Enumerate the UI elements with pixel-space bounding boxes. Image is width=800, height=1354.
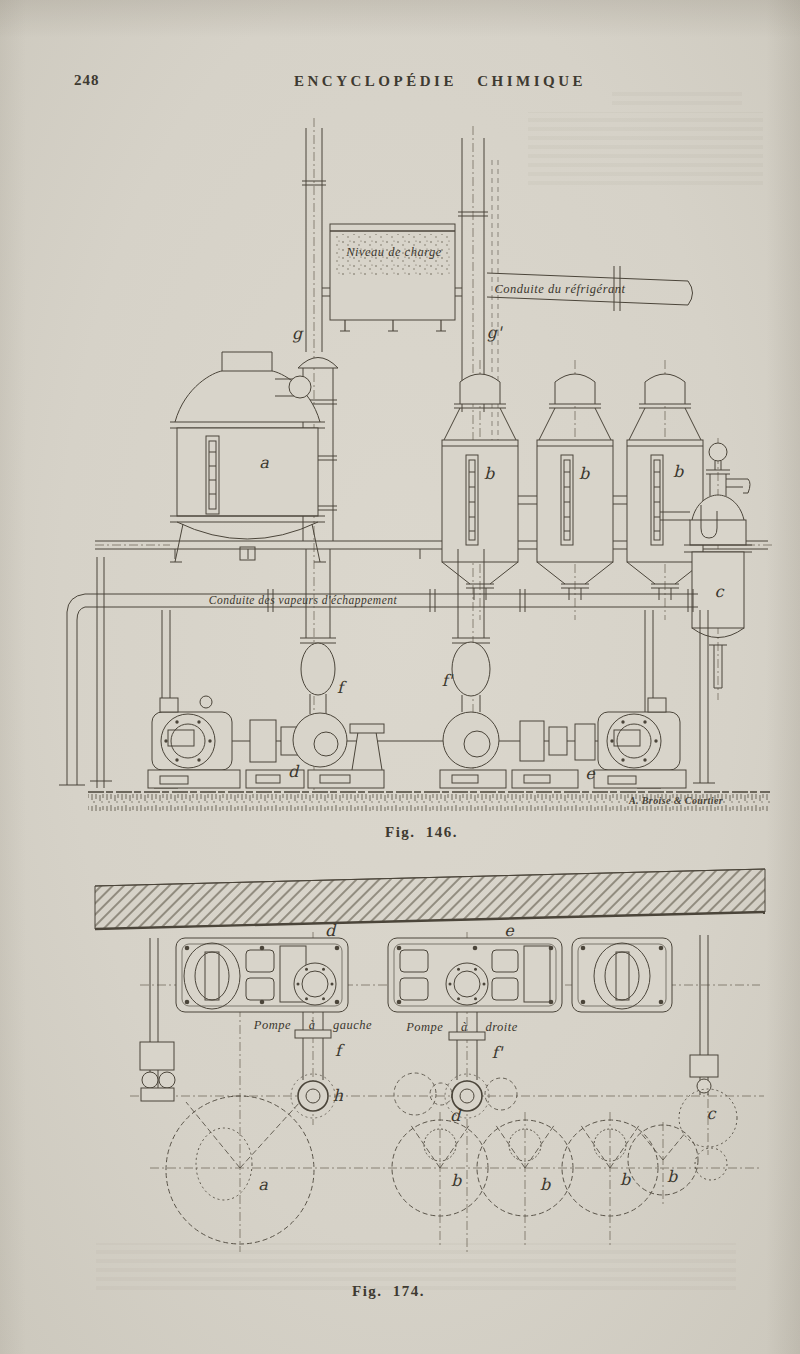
pump-pipe-f-prime [452,549,490,712]
fig174-label-a: a [258,1177,268,1193]
fig174-label-d-plate: d [325,923,335,939]
fig146-label-g-prime: g' [487,325,502,341]
fig174-label-d-small: d [450,1108,460,1124]
fig174-label-e-plate: e [504,923,513,939]
fig146-label-conduite-vapeurs: Conduite des vapeurs d'échappement [209,595,397,607]
fig174-label-pompe-droite: Pompe à droite [406,1021,518,1034]
vessel-b-group [442,374,703,600]
fig174-label-b1: b [451,1173,461,1189]
engine-plate-right [572,938,672,1012]
fig146-label-b2: b [579,466,589,482]
fig174-label-h: h [333,1088,343,1104]
fig146-label-b1: b [484,466,494,482]
fig174-label-pompe-gauche: Pompe à gauche [254,1019,372,1032]
fig146-label-d: d [288,764,298,780]
fig146-label-f: f [337,680,343,696]
fig146-label-niveau-de-charge: Niveau de charge [346,246,442,259]
fig146-label-c: c [715,584,724,600]
baseplate-e [388,938,562,1012]
fig146-engraver-signature: A. Broise & Courtier [629,796,723,806]
scanned-page: 248 ENCYCLOPÉDIE CHIMIQUE [0,0,800,1354]
fig146-label-conduite-refrigerant: Conduite du réfrigérant [495,283,626,296]
pump-pipe-f [300,549,336,714]
fig174-label-f-prime: f' [492,1045,502,1061]
fig174-label-c: c [707,1106,716,1122]
fig146-label-e: e [585,766,594,782]
fig146-label-a: a [259,455,269,471]
engraving-canvas [0,0,800,1354]
fig174-label-f: f [335,1043,341,1059]
fig174-caption: Fig. 174. [352,1283,425,1300]
pump-set-e [440,698,686,788]
fig174-engraving [95,869,765,1252]
pump-outlet-h [291,1074,335,1118]
fig146-label-f-prime: f' [442,673,452,689]
fig174-label-b2: b [540,1177,550,1193]
fig146-caption: Fig. 146. [385,824,458,841]
fig174-label-b3: b [620,1172,630,1188]
fig146-label-b3: b [673,464,683,480]
fig174-label-b4: b [667,1169,677,1185]
fig146-label-g: g [292,326,302,342]
baseplate-d [176,938,348,1012]
fig146-engraving [59,118,772,811]
